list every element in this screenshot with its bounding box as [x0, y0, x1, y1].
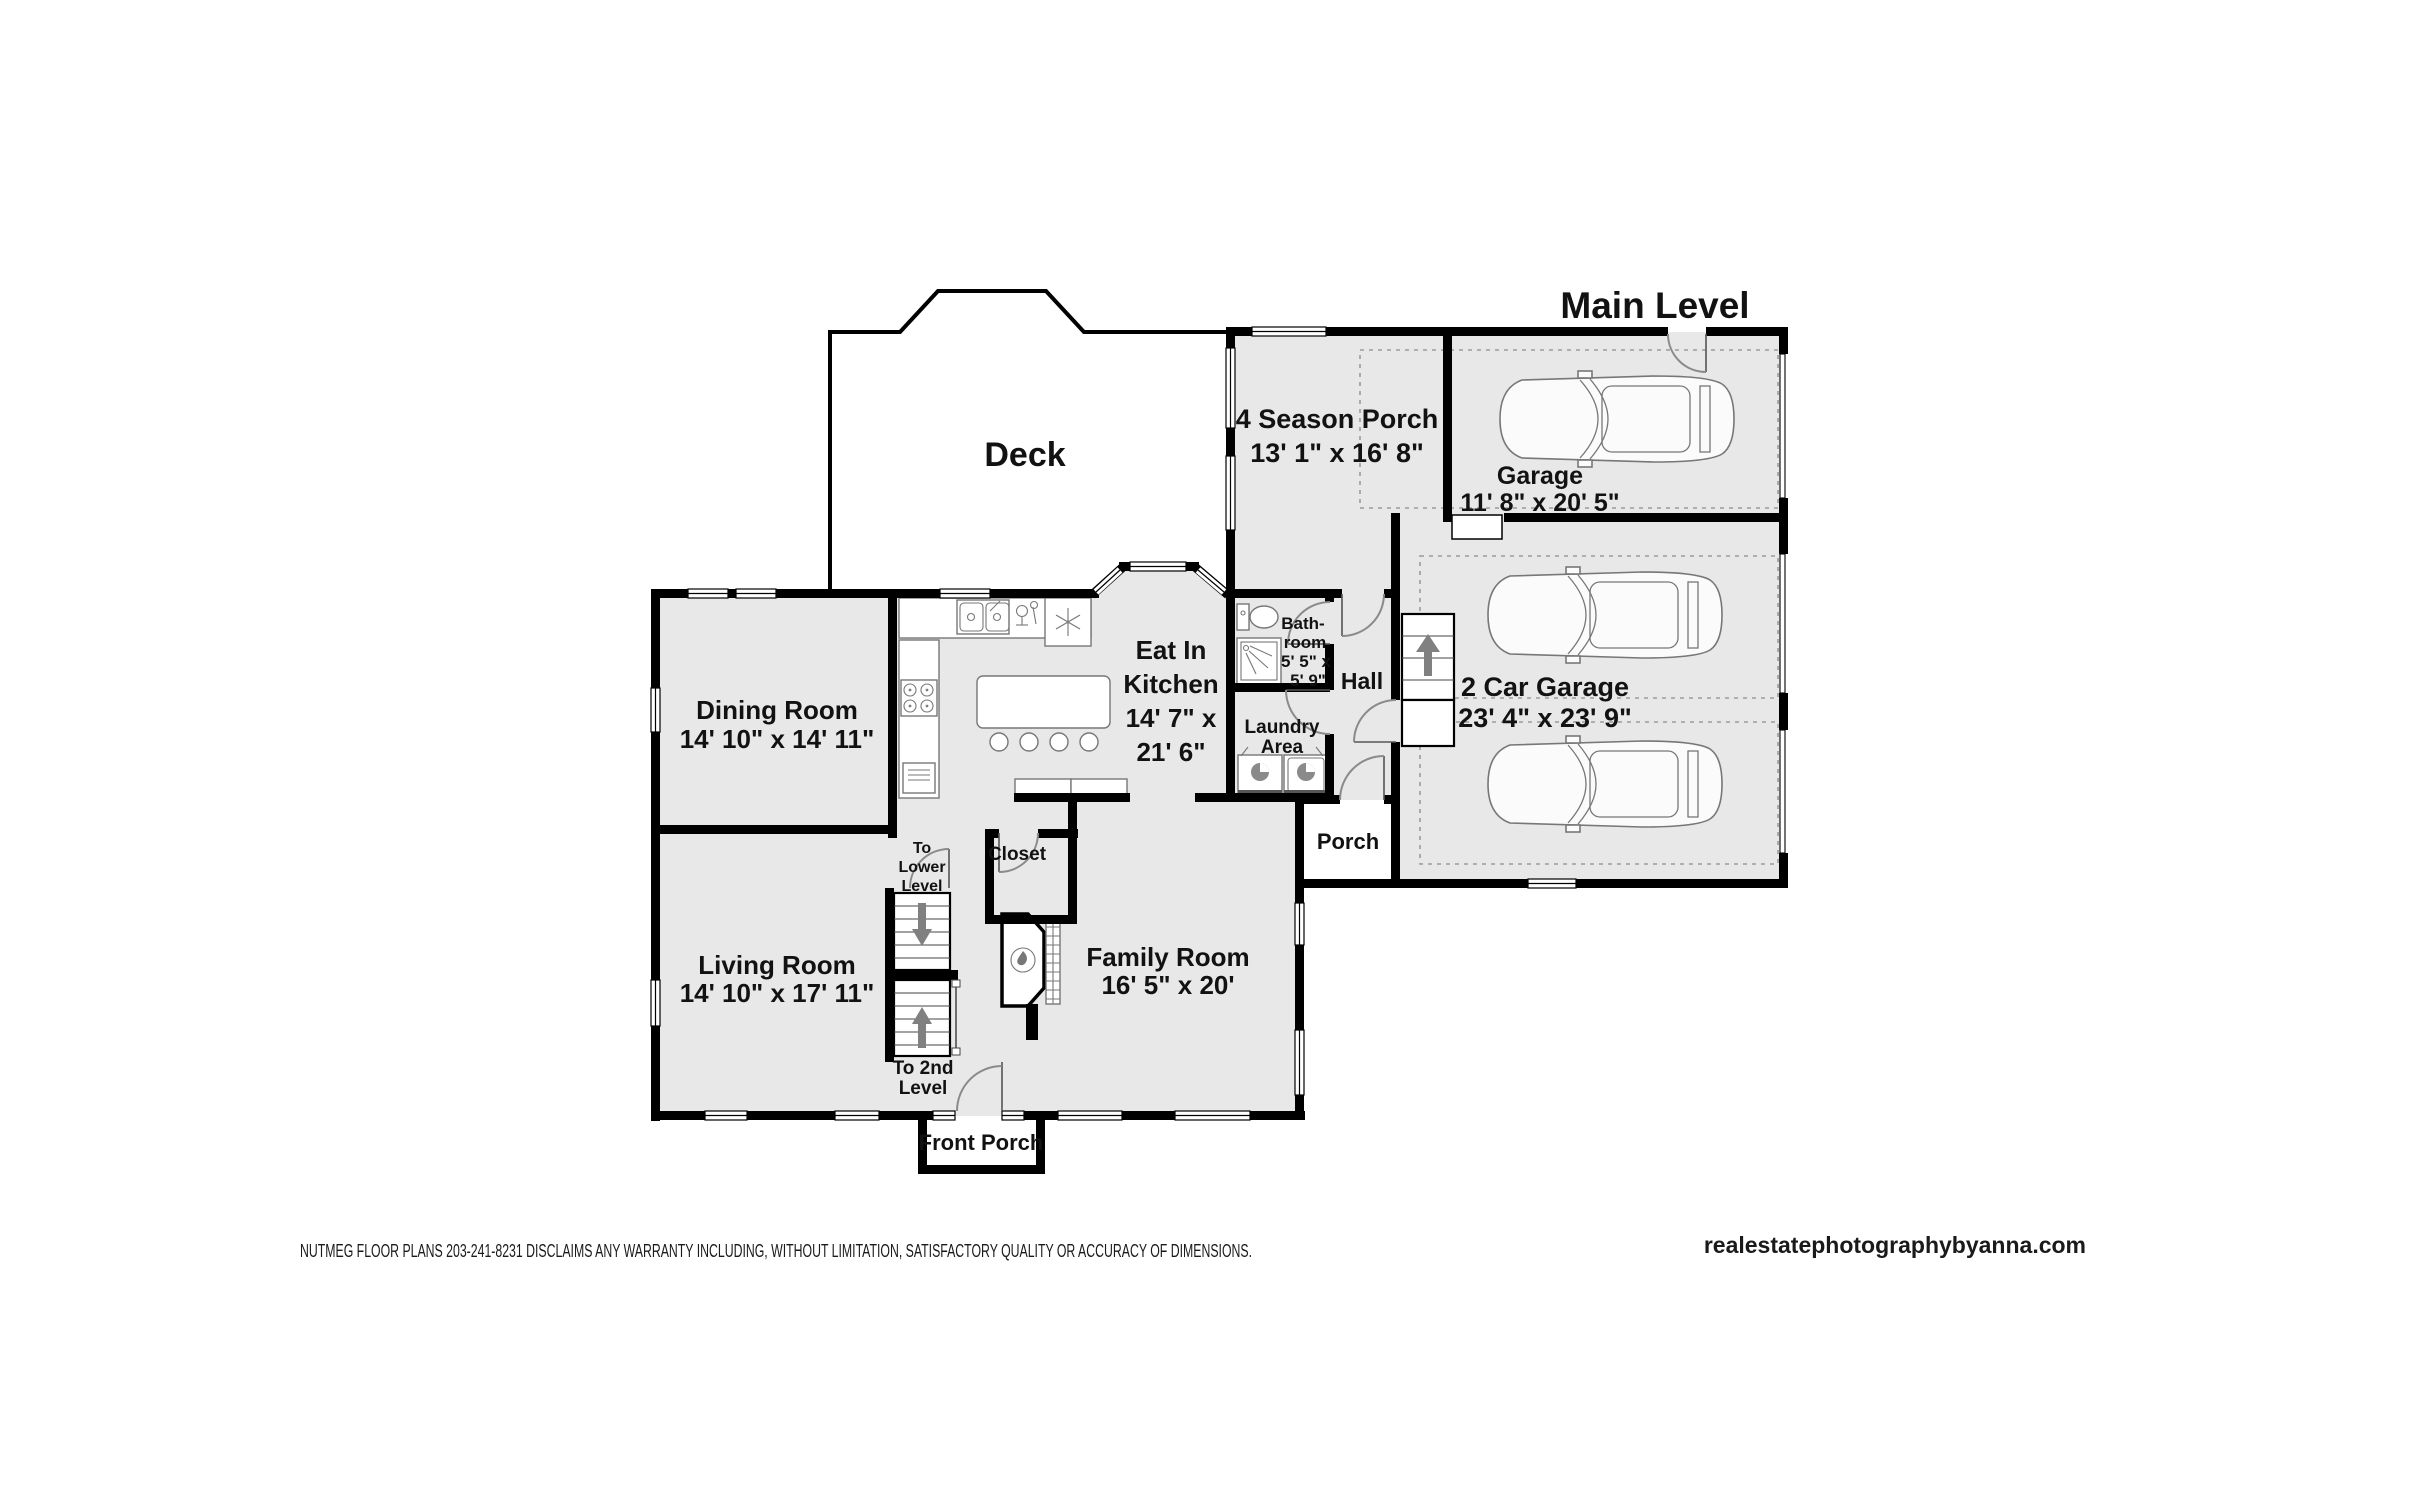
window	[705, 1111, 747, 1120]
stool	[990, 733, 1008, 751]
garage-entry-stairs	[1402, 614, 1454, 746]
fireplace	[1002, 914, 1060, 1006]
two-car-garage-dims: 23' 4" x 23' 9"	[1458, 703, 1632, 733]
stool	[1020, 733, 1038, 751]
family-room-label: Family Room	[1086, 942, 1249, 972]
two-car-garage-label: 2 Car Garage	[1461, 672, 1629, 702]
window	[940, 589, 990, 598]
kitchen-dims-1: 14' 7" x	[1126, 703, 1217, 733]
garage-doors	[1780, 354, 1785, 853]
window	[1295, 903, 1304, 945]
toilet-icon	[1237, 604, 1278, 630]
floor-plan-page: Main Level Deck 4 Season Porch 13' 1" x …	[0, 0, 2420, 1502]
bathroom-label-1: Bath-	[1281, 614, 1324, 633]
to-lower-level-label-2: Lower	[898, 859, 945, 876]
four-season-porch-dims: 13' 1" x 16' 8"	[1250, 438, 1424, 468]
dining-room-label: Dining Room	[696, 695, 858, 725]
garage-label: Garage	[1497, 462, 1583, 490]
car-two-car-garage-2	[1488, 736, 1722, 832]
disclaimer-text: NUTMEG FLOOR PLANS 203-241-8231 DISCLAIM…	[300, 1241, 1252, 1261]
refrigerator-icon	[1045, 598, 1091, 646]
stool	[1080, 733, 1098, 751]
front-porch-label: Front Porch	[919, 1130, 1044, 1155]
family-room-dims: 16' 5" x 20'	[1101, 970, 1234, 1000]
window	[1058, 1111, 1122, 1120]
to-lower-level-label-3: Level	[902, 878, 943, 895]
website-text: realestatephotographybyanna.com	[1704, 1232, 2086, 1258]
window	[688, 589, 728, 598]
window	[1528, 879, 1576, 888]
garage-dims: 11' 8" x 20' 5"	[1460, 489, 1619, 517]
window-sidelite	[1002, 1111, 1024, 1120]
porch-label: Porch	[1317, 829, 1379, 854]
hall-label: Hall	[1341, 668, 1383, 694]
window	[1295, 1030, 1304, 1095]
kitchen-label-2: Kitchen	[1123, 669, 1218, 699]
bathroom-dims-1: 5' 5" x	[1281, 652, 1331, 671]
shower-icon	[1237, 638, 1281, 684]
to-lower-level-label-1: To	[913, 840, 932, 857]
dryer-icon	[1284, 755, 1328, 795]
window	[1175, 1111, 1250, 1120]
window	[736, 589, 776, 598]
living-room-dims: 14' 10" x 17' 11"	[680, 978, 875, 1008]
living-room-label: Living Room	[698, 950, 855, 980]
page-title: Main Level	[1560, 285, 1749, 326]
window-sidelite	[933, 1111, 955, 1120]
kitchen-dims-2: 21' 6"	[1136, 737, 1205, 767]
stairs-to-2nd-level	[894, 980, 960, 1056]
laundry-label-2: Area	[1261, 737, 1304, 758]
window	[651, 688, 660, 732]
window	[1252, 327, 1326, 336]
stairs-to-lower-level	[894, 893, 950, 970]
kitchen-counter-left	[899, 640, 939, 798]
laundry-label-1: Laundry	[1245, 717, 1320, 738]
to-2nd-level-label-1: To 2nd	[893, 1058, 954, 1079]
bathroom-label-2: room	[1284, 633, 1327, 652]
deck-label: Deck	[984, 436, 1065, 474]
stool	[1050, 733, 1068, 751]
dining-room-dims: 14' 10" x 14' 11"	[680, 724, 875, 754]
car-top-garage	[1500, 371, 1734, 467]
window	[1130, 562, 1186, 571]
car-two-car-garage-1	[1488, 567, 1722, 663]
window	[1226, 348, 1235, 428]
washer-icon	[1238, 755, 1282, 795]
bathroom-dims-2: 5' 9"	[1290, 671, 1326, 690]
to-2nd-level-label-2: Level	[899, 1078, 948, 1099]
window	[1226, 456, 1235, 530]
floor-plan-drawing: Main Level Deck 4 Season Porch 13' 1" x …	[0, 0, 2420, 1502]
wall-oven-icon	[903, 763, 935, 793]
window	[651, 980, 660, 1026]
window	[835, 1111, 879, 1120]
closet-label: Closet	[988, 844, 1047, 865]
four-season-porch-label: 4 Season Porch	[1236, 404, 1439, 434]
kitchen-label-1: Eat In	[1136, 635, 1207, 665]
garage-step	[1452, 515, 1502, 539]
